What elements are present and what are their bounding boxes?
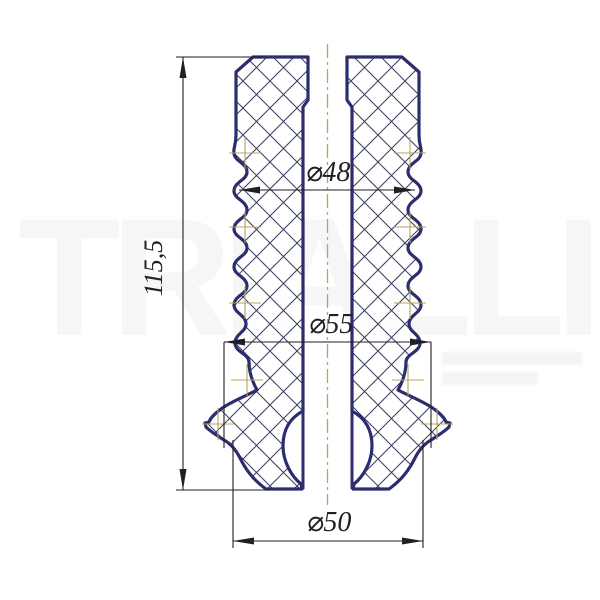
dimension-dia-bottom-label: ⌀50 [307, 507, 352, 538]
drawing-canvas: TRIALLI [0, 0, 600, 600]
dimension-height-label: 115,5 [139, 240, 168, 297]
arrowhead-down [180, 469, 187, 490]
technical-drawing: 115,5 ⌀48 ⌀55 ⌀50 [0, 0, 600, 600]
dimension-dia-mid-label: ⌀55 [309, 309, 354, 340]
dimension-dia-top-label: ⌀48 [306, 157, 351, 188]
arrowhead-right [402, 538, 423, 545]
arrowhead-left [233, 538, 254, 545]
arrowhead-up [180, 57, 187, 78]
